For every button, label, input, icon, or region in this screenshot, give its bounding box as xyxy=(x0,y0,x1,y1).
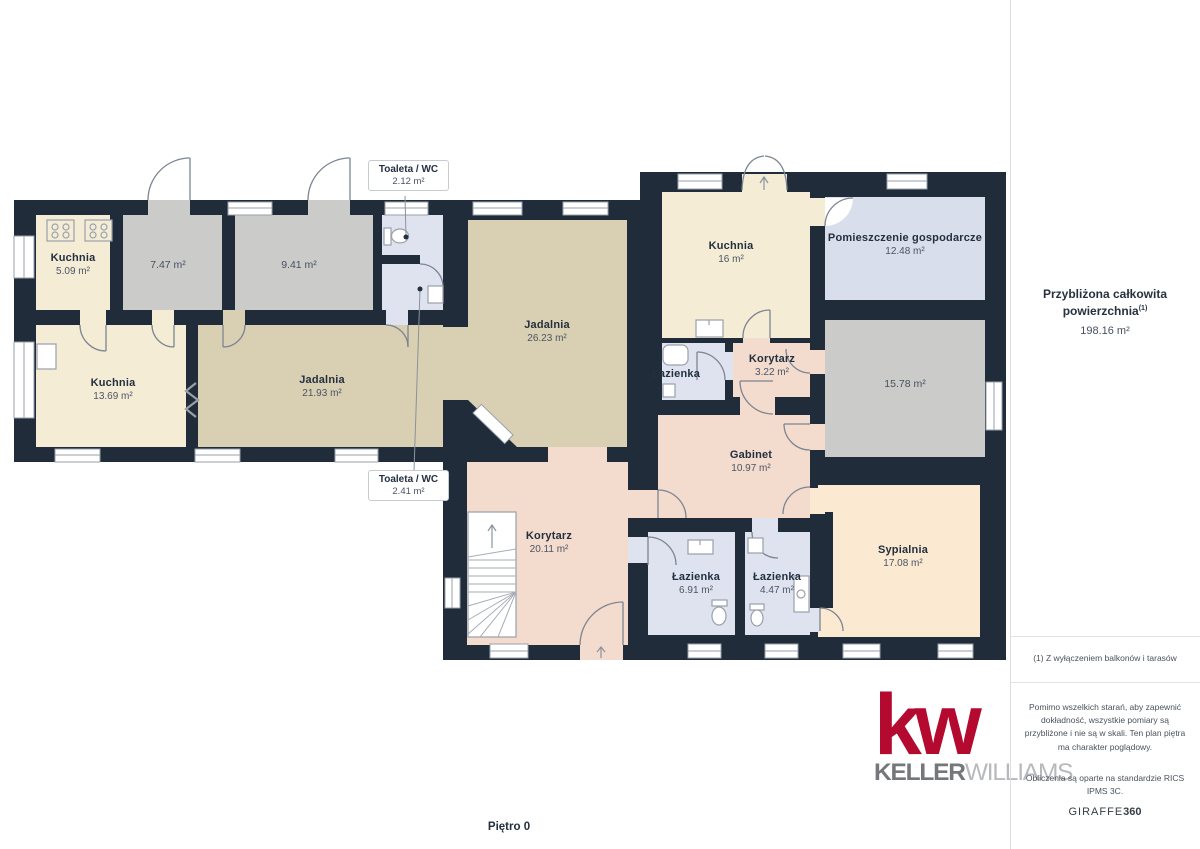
total-area-value: 198.16 m² xyxy=(1030,325,1180,337)
callout-toaleta-212: Toaleta / WC 2.12 m² xyxy=(368,160,449,191)
room-kuchnia16 xyxy=(662,192,810,338)
sidebar-separator-top xyxy=(1011,636,1200,637)
room-label-jadalnia26: Jadalnia 26.23 m² xyxy=(524,319,570,344)
floor-label: Piętro 0 xyxy=(488,821,530,833)
room-label-kuchnia5: Kuchnia 5.09 m² xyxy=(51,252,96,277)
room-label-gabinet: Gabinet 10.97 m² xyxy=(730,449,772,474)
footnote-marker: (1) xyxy=(1139,305,1148,312)
room-label-sypialnia: Sypialnia 17.08 m² xyxy=(878,544,928,569)
floorplan-page: kw KELLERWILLIAMS xyxy=(0,0,1200,849)
room-label-korytarz3: Korytarz 3.22 m² xyxy=(749,353,795,378)
room-label-korytarz20: Korytarz 20.11 m² xyxy=(526,530,572,555)
total-area-title: Przybliżona całkowita powierzchnia(1) xyxy=(1030,286,1180,321)
room-label-jadalnia21: Jadalnia 21.93 m² xyxy=(299,374,345,399)
sidebar-standard-note: Obliczenia są oparte na standardzie RICS… xyxy=(1022,772,1188,798)
sidebar-footnote: (1) Z wyłączeniem balkonów i tarasów xyxy=(1014,653,1196,663)
room-label-pomieszczenie: Pomieszczenie gospodarcze 12.48 m² xyxy=(828,232,982,257)
sidebar-disclaimer: Pomimo wszelkich starań, aby zapewnić do… xyxy=(1022,701,1188,754)
room-label-kuchnia13: Kuchnia 13.69 m² xyxy=(91,377,136,402)
room-label-lazienka691: Łazienka 6.91 m² xyxy=(672,571,720,596)
sink-icon xyxy=(428,286,443,303)
stairs xyxy=(468,512,516,637)
sidebar-separator-bottom xyxy=(1011,682,1200,683)
giraffe360-logo: GIRAFFE360 xyxy=(1022,806,1188,818)
room-label-kuchnia16: Kuchnia 16 m² xyxy=(709,240,754,265)
room-label-lazienka447: Łazienka 4.47 m² xyxy=(753,571,801,596)
room-label-1578: 15.78 m² xyxy=(884,378,925,390)
callout-toaleta-241: Toaleta / WC 2.41 m² xyxy=(368,470,449,501)
room-label-747: 7.47 m² xyxy=(150,259,186,271)
room-label-lazienka-mid: Łazienka xyxy=(652,368,700,380)
kitchen-sink-icon xyxy=(696,320,723,337)
fridge-icon xyxy=(37,344,56,369)
sidebar-divider xyxy=(1010,0,1011,849)
room-label-941: 9.41 m² xyxy=(281,259,317,271)
